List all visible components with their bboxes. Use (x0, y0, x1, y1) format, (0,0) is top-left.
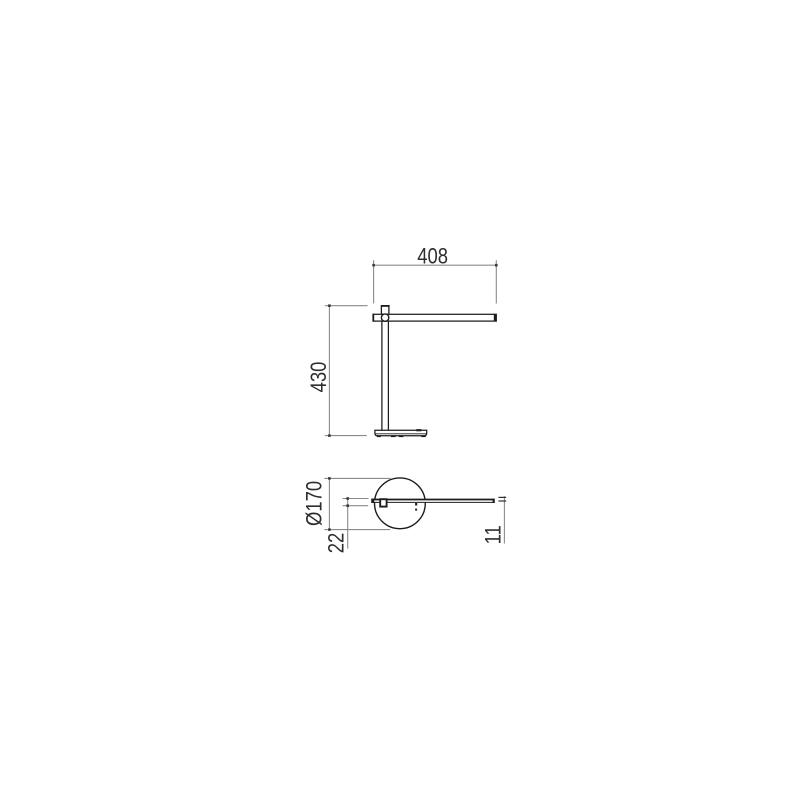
svg-text:Ø170: Ø170 (303, 481, 327, 526)
svg-text:430: 430 (308, 362, 332, 393)
svg-text:22: 22 (325, 533, 349, 554)
svg-text:11: 11 (482, 525, 506, 544)
svg-text:408: 408 (417, 245, 448, 269)
